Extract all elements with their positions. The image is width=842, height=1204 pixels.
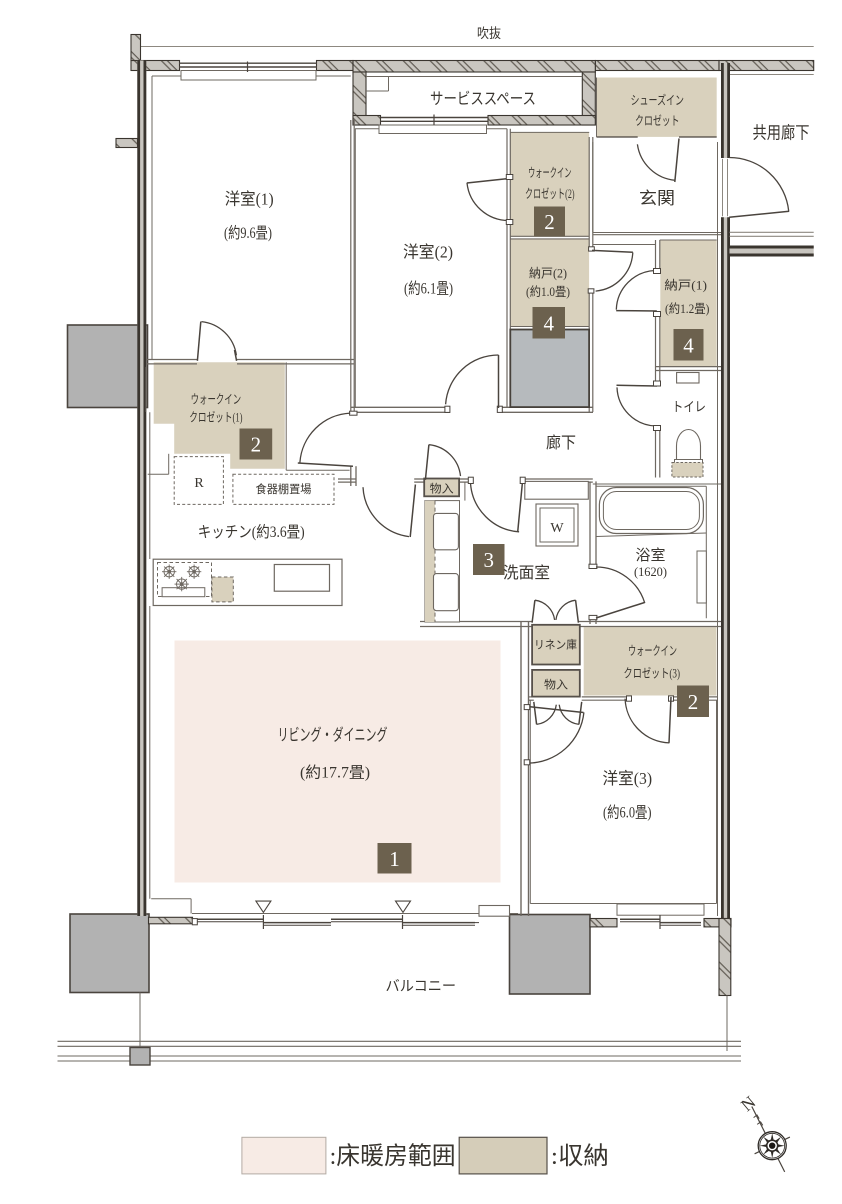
svg-text:玄関: 玄関 [639,189,675,208]
svg-text:クロゼット(3): クロゼット(3) [624,667,681,681]
svg-text:物入: 物入 [430,481,455,495]
svg-text:クロゼット(1): クロゼット(1) [189,411,242,425]
svg-text:2: 2 [251,433,262,457]
svg-text:3: 3 [484,548,495,572]
svg-text:(約1.2畳): (約1.2畳) [665,301,710,316]
svg-text:2: 2 [688,690,699,714]
svg-text:(約6.1畳): (約6.1畳) [404,280,453,298]
svg-text:ウォークイン: ウォークイン [628,644,677,658]
svg-text:納戸(1): 納戸(1) [664,279,707,293]
svg-text:洗面室: 洗面室 [503,564,550,582]
svg-text:物入: 物入 [544,678,569,692]
svg-text:共用廊下: 共用廊下 [753,124,810,143]
svg-text:廊下: 廊下 [546,434,576,452]
svg-text:(約1.0畳): (約1.0畳) [526,284,570,299]
svg-text:浴室: 浴室 [636,547,666,564]
svg-text:ウォークイン: ウォークイン [191,393,242,407]
svg-text:(1620): (1620) [634,565,667,579]
svg-text:4: 4 [683,333,694,357]
svg-text::床暖房範囲: :床暖房範囲 [330,1142,456,1170]
svg-text:バルコニー: バルコニー [386,979,457,995]
svg-text:トイレ: トイレ [672,400,706,415]
svg-text::収納: :収納 [551,1142,609,1170]
svg-text:クロゼット: クロゼット [635,114,680,128]
svg-text:洋室(1): 洋室(1) [225,190,274,209]
svg-text:リネン庫: リネン庫 [534,638,577,652]
svg-text:W: W [550,521,564,536]
svg-text:1: 1 [389,847,400,871]
svg-text:シューズイン: シューズイン [631,93,685,108]
svg-text:R: R [194,476,204,491]
svg-text:洋室(3): 洋室(3) [603,769,653,788]
svg-text:クロゼット(2): クロゼット(2) [525,187,575,201]
svg-text:2: 2 [544,210,555,234]
svg-text:(約6.0畳): (約6.0畳) [603,804,652,822]
svg-text:(約17.7畳): (約17.7畳) [300,764,370,782]
svg-text:吹抜: 吹抜 [477,26,501,41]
svg-text:リビング・ダイニング: リビング・ダイニング [278,726,388,745]
svg-text:洋室(2): 洋室(2) [403,243,453,262]
svg-text:ウォークイン: ウォークイン [528,166,572,180]
svg-text:キッチン(約3.6畳): キッチン(約3.6畳) [198,523,305,541]
svg-text:食器棚置場: 食器棚置場 [256,482,312,496]
svg-text:4: 4 [544,311,555,335]
svg-text:(約9.6畳): (約9.6畳) [224,224,272,242]
svg-text:サービススペース: サービススペース [430,90,536,108]
svg-text:納戸(2): 納戸(2) [529,267,567,281]
